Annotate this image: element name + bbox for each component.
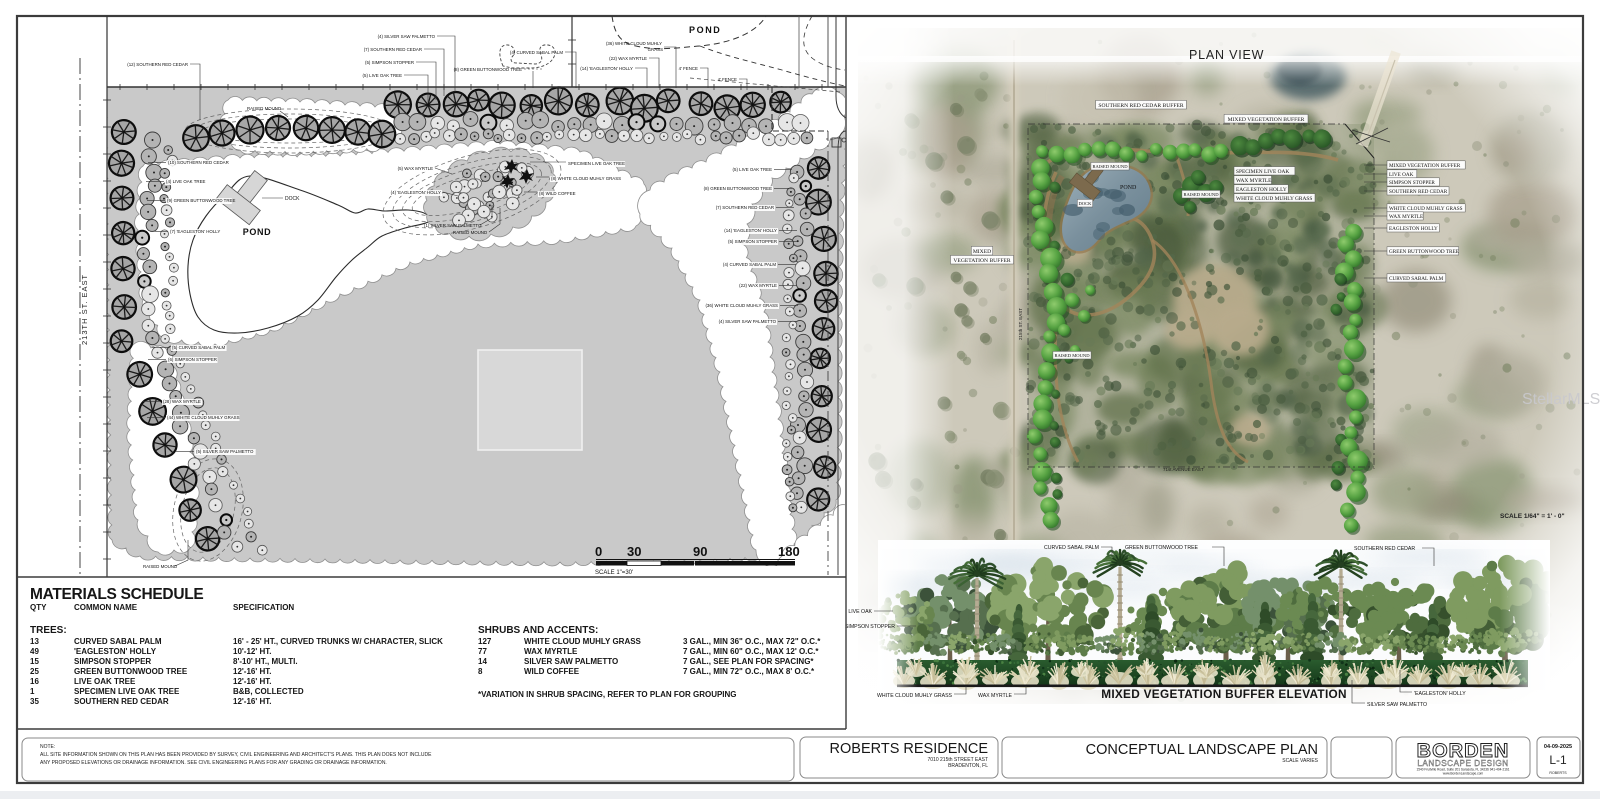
svg-text:WILD COFFEE: WILD COFFEE [524, 667, 580, 676]
svg-text:'EAGLESTON' HOLLY: 'EAGLESTON' HOLLY [74, 647, 157, 656]
svg-text:25: 25 [30, 667, 39, 676]
svg-text:*VARIATION IN SHRUB SPACING, R: *VARIATION IN SHRUB SPACING, REFER TO PL… [478, 690, 737, 699]
svg-text:MIXED VEGETATION BUFFER ELEVAT: MIXED VEGETATION BUFFER ELEVATION [1101, 687, 1347, 701]
svg-text:(22) WAX MYRTLE: (22) WAX MYRTLE [739, 283, 777, 288]
svg-text:ALL SITE INFORMATION SHOWN ON: ALL SITE INFORMATION SHOWN ON THIS PLAN … [40, 752, 432, 758]
svg-text:(5) LIVE OAK TREE: (5) LIVE OAK TREE [733, 167, 773, 172]
svg-text:GREEN BUTTONWOOD TREE: GREEN BUTTONWOOD TREE [74, 667, 188, 676]
svg-text:SPECIMEN LIVE OAK: SPECIMEN LIVE OAK [1236, 169, 1289, 175]
svg-text:(1) SILVER SAW PALMETTO: (1) SILVER SAW PALMETTO [424, 223, 482, 228]
svg-text:CURVED SABAL PALM: CURVED SABAL PALM [1389, 276, 1444, 282]
svg-text:LIVE OAK: LIVE OAK [1389, 172, 1414, 178]
svg-text:(7) SOUTHERN RED CEDAR: (7) SOUTHERN RED CEDAR [716, 205, 774, 210]
svg-text:(44) WHITE CLOUD MUHLY GRASS: (44) WHITE CLOUD MUHLY GRASS [167, 415, 240, 420]
svg-text:SCALE VARIES: SCALE VARIES [1282, 758, 1318, 764]
svg-text:14: 14 [478, 657, 487, 666]
svg-text:(5) WAX MYRTLE: (5) WAX MYRTLE [398, 166, 433, 171]
svg-text:(10) SOUTHERN RED CEDAR: (10) SOUTHERN RED CEDAR [168, 160, 229, 165]
svg-text:(4) 'EAGLESTON' HOLLY: (4) 'EAGLESTON' HOLLY [391, 190, 441, 195]
svg-text:(12) SOUTHERN RED CEDAR: (12) SOUTHERN RED CEDAR [127, 62, 188, 67]
svg-text:NOTE:: NOTE: [40, 744, 55, 750]
svg-text:12'-16' HT.: 12'-16' HT. [233, 697, 272, 706]
svg-text:8'-10' HT., MULTI.: 8'-10' HT., MULTI. [233, 657, 298, 666]
svg-text:SILVER SAW PALMETTO: SILVER SAW PALMETTO [1367, 702, 1427, 708]
svg-text:(4) SILVER SAW PALMETTO: (4) SILVER SAW PALMETTO [378, 34, 436, 39]
svg-text:4' FENCE: 4' FENCE [679, 66, 698, 71]
svg-text:RAISED MOUND: RAISED MOUND [453, 230, 487, 235]
svg-text:3 GAL., MIN 36" O.C., MAX 72": 3 GAL., MIN 36" O.C., MAX 72" O.C.* [683, 637, 821, 646]
svg-text:L-1: L-1 [1549, 753, 1567, 767]
svg-text:SHRUBS AND ACCENTS:: SHRUBS AND ACCENTS: [478, 625, 598, 636]
svg-text:SIMPSON STOPPER: SIMPSON STOPPER [74, 657, 151, 666]
svg-text:16' - 25' HT., CURVED TRUNKS W: 16' - 25' HT., CURVED TRUNKS W/ CHARACTE… [233, 637, 443, 646]
svg-text:DOCK: DOCK [285, 196, 300, 202]
svg-text:(8) GREEN BUTTONWOOD TREE: (8) GREEN BUTTONWOOD TREE [704, 186, 772, 191]
svg-text:WAX MYRTLE: WAX MYRTLE [1389, 214, 1423, 220]
svg-text:12'-16' HT.: 12'-16' HT. [233, 667, 272, 676]
svg-text:POND: POND [689, 25, 721, 35]
svg-text:EAGLESTON HOLLY: EAGLESTON HOLLY [1236, 187, 1287, 193]
svg-text:(4) CURVED SABAL PALM: (4) CURVED SABAL PALM [510, 50, 563, 55]
svg-text:SOUTHERN RED CEDAR BUFFER: SOUTHERN RED CEDAR BUFFER [1098, 103, 1184, 109]
svg-text:SPECIFICATION: SPECIFICATION [233, 603, 294, 612]
svg-text:GRASS: GRASS [648, 47, 663, 52]
svg-text:(22) WAX MYRTLE: (22) WAX MYRTLE [609, 56, 647, 61]
svg-text:(6) SIMPSON STOPPER: (6) SIMPSON STOPPER [168, 357, 217, 362]
svg-text:WHITE CLOUD MUHLY GRASS: WHITE CLOUD MUHLY GRASS [1389, 206, 1463, 212]
svg-text:(8) GREEN BUTTONWOOD TREE: (8) GREEN BUTTONWOOD TREE [454, 67, 522, 72]
svg-text:04-09-2025: 04-09-2025 [1544, 744, 1572, 750]
svg-text:90: 90 [693, 544, 707, 559]
svg-text:GREEN BUTTONWOOD TREE: GREEN BUTTONWOOD TREE [1125, 545, 1199, 551]
svg-text:77: 77 [478, 647, 487, 656]
svg-text:RAISED MOUND: RAISED MOUND [143, 564, 177, 569]
svg-text:7 GAL., SEE PLAN FOR SPACING*: 7 GAL., SEE PLAN FOR SPACING* [683, 657, 814, 666]
svg-text:4' FENCE: 4' FENCE [718, 77, 737, 82]
svg-text:213TH ST. EAST: 213TH ST. EAST [80, 274, 89, 345]
svg-text:(9) GREEN BUTTONWOOD TREE: (9) GREEN BUTTONWOOD TREE [167, 198, 235, 203]
svg-text:MIXED VEGETATION BUFFER: MIXED VEGETATION BUFFER [1228, 117, 1305, 123]
svg-text:13: 13 [30, 637, 39, 646]
svg-text:www.BordenLandscape.com: www.BordenLandscape.com [1443, 772, 1484, 776]
svg-text:(5) SIMPSON STOPPER: (5) SIMPSON STOPPER [728, 239, 777, 244]
svg-text:RAISED MOUND: RAISED MOUND [1183, 192, 1219, 197]
svg-text:COMMON NAME: COMMON NAME [74, 603, 138, 612]
svg-text:SPECIMEN LIVE OAK TREE: SPECIMEN LIVE OAK TREE [568, 161, 625, 166]
svg-text:WAX MYRTLE: WAX MYRTLE [1236, 178, 1272, 184]
svg-text:127: 127 [478, 637, 492, 646]
svg-text:1: 1 [30, 687, 35, 696]
svg-text:TREES:: TREES: [30, 625, 67, 636]
svg-text:ANY PROPOSED ELEVATIONS OR DRA: ANY PROPOSED ELEVATIONS OR DRAINAGE INFO… [40, 760, 387, 766]
svg-text:MIXED: MIXED [973, 249, 991, 255]
svg-text:(8) WHITE CLOUD MUHLY GRASS: (8) WHITE CLOUD MUHLY GRASS [551, 176, 621, 181]
svg-text:(8) WILD COFFEE: (8) WILD COFFEE [539, 191, 576, 196]
svg-text:30: 30 [627, 544, 641, 559]
svg-text:WHITE CLOUD MUHLY GRASS: WHITE CLOUD MUHLY GRASS [1236, 196, 1312, 202]
svg-text:(4) LIVE OAK TREE: (4) LIVE OAK TREE [166, 179, 206, 184]
svg-text:SOUTHERN RED CEDAR: SOUTHERN RED CEDAR [74, 697, 169, 706]
svg-text:POND: POND [1120, 185, 1137, 191]
svg-text:VEGETATION BUFFER: VEGETATION BUFFER [953, 258, 1010, 264]
svg-text:215th ST. EAST: 215th ST. EAST [1018, 308, 1023, 340]
svg-text:SPECIMEN LIVE OAK TREE: SPECIMEN LIVE OAK TREE [74, 687, 180, 696]
svg-text:LIVE OAK TREE: LIVE OAK TREE [74, 677, 136, 686]
svg-text:(7) 'EAGLESTON' HOLLY: (7) 'EAGLESTON' HOLLY [170, 229, 220, 234]
svg-text:SOUTHERN RED CEDAR: SOUTHERN RED CEDAR [1354, 546, 1415, 552]
svg-text:MIXED VEGETATION BUFFER: MIXED VEGETATION BUFFER [1389, 163, 1461, 169]
svg-text:15: 15 [30, 657, 39, 666]
svg-text:7 GAL., MIN 60" O.C., MAX 12': 7 GAL., MIN 60" O.C., MAX 12' O.C.* [683, 647, 819, 656]
svg-text:BRADENTON, FL: BRADENTON, FL [948, 763, 988, 769]
svg-text:(36) WHITE CLOUD MUHLY GRASS: (36) WHITE CLOUD MUHLY GRASS [705, 303, 778, 308]
svg-text:SOUTHERN RED CEDAR: SOUTHERN RED CEDAR [1389, 189, 1448, 195]
svg-text:35: 35 [30, 697, 39, 706]
svg-text:CONCEPTUAL LANDSCAPE PLAN: CONCEPTUAL LANDSCAPE PLAN [1086, 742, 1318, 758]
svg-text:GREEN BUTTONWOOD TREE: GREEN BUTTONWOOD TREE [1389, 249, 1459, 255]
svg-text:(5) SILVER SAW PALMETTO: (5) SILVER SAW PALMETTO [196, 449, 254, 454]
svg-text:ROBERTS: ROBERTS [1549, 771, 1567, 775]
svg-text:WHITE CLOUD MUHLY GRASS: WHITE CLOUD MUHLY GRASS [524, 637, 642, 646]
svg-text:WAX MYRTLE: WAX MYRTLE [524, 647, 578, 656]
svg-text:WHITE CLOUD MUHLY GRASS: WHITE CLOUD MUHLY GRASS [877, 693, 953, 699]
svg-text:RAISED MOUND: RAISED MOUND [247, 106, 281, 111]
svg-text:(5) CURVED SABAL PALM: (5) CURVED SABAL PALM [172, 345, 225, 350]
svg-text:(5) LIVE OAK TREE: (5) LIVE OAK TREE [363, 73, 403, 78]
svg-text:RAISED MOUND: RAISED MOUND [1092, 164, 1128, 169]
svg-text:SCALE 1/64" = 1' - 0": SCALE 1/64" = 1' - 0" [1500, 513, 1565, 520]
svg-text:(5) SIMPSON STOPPER: (5) SIMPSON STOPPER [365, 60, 414, 65]
svg-text:8: 8 [478, 667, 483, 676]
svg-text:PLAN VIEW: PLAN VIEW [1189, 48, 1264, 62]
svg-text:EAGLESTON HOLLY: EAGLESTON HOLLY [1389, 226, 1438, 232]
svg-text:SCALE 1"=30': SCALE 1"=30' [595, 570, 633, 576]
svg-text:(4) SILVER SAW PALMETTO: (4) SILVER SAW PALMETTO [719, 319, 777, 324]
svg-text:180: 180 [778, 544, 800, 559]
svg-text:71st AVENUE EAST: 71st AVENUE EAST [1163, 467, 1204, 472]
svg-text:QTY: QTY [30, 603, 47, 612]
svg-text:RAISED MOUND: RAISED MOUND [1054, 353, 1090, 358]
svg-text:LIVE OAK: LIVE OAK [848, 609, 872, 615]
svg-text:SILVER SAW PALMETTO: SILVER SAW PALMETTO [524, 657, 618, 666]
svg-text:SIMPSON STOPPER: SIMPSON STOPPER [845, 624, 895, 630]
svg-text:16: 16 [30, 677, 39, 686]
svg-text:B&B, COLLECTED: B&B, COLLECTED [233, 687, 304, 696]
svg-text:CURVED SABAL PALM: CURVED SABAL PALM [1044, 545, 1099, 551]
svg-text:(7) SOUTHERN RED CEDAR: (7) SOUTHERN RED CEDAR [364, 47, 422, 52]
svg-text:(28) WAX MYRTLE: (28) WAX MYRTLE [163, 399, 201, 404]
svg-text:ROBERTS RESIDENCE: ROBERTS RESIDENCE [830, 741, 989, 757]
svg-text:DOCK: DOCK [1078, 201, 1092, 206]
svg-text:49: 49 [30, 647, 39, 656]
svg-text:0: 0 [595, 544, 602, 559]
svg-text:StellarMLS: StellarMLS [1522, 391, 1600, 408]
svg-text:'EAGLESTON' HOLLY: 'EAGLESTON' HOLLY [1414, 691, 1466, 697]
svg-text:(36) WHITE CLOUD MUHLY: (36) WHITE CLOUD MUHLY [606, 41, 662, 46]
svg-text:POND: POND [243, 227, 271, 237]
svg-text:MATERIALS SCHEDULE: MATERIALS SCHEDULE [30, 586, 203, 603]
svg-text:CURVED SABAL PALM: CURVED SABAL PALM [74, 637, 162, 646]
svg-text:(4) CURVED SABAL PALM: (4) CURVED SABAL PALM [723, 262, 776, 267]
svg-text:10'-12' HT.: 10'-12' HT. [233, 647, 272, 656]
svg-text:(14) 'EAGLESTON' HOLLY: (14) 'EAGLESTON' HOLLY [724, 228, 777, 233]
svg-text:WAX MYRTLE: WAX MYRTLE [978, 693, 1013, 699]
svg-text:SIMPSON STOPPER: SIMPSON STOPPER [1389, 180, 1435, 186]
svg-text:(14) 'EAGLESTON' HOLLY: (14) 'EAGLESTON' HOLLY [580, 66, 633, 71]
svg-text:7 GAL., MIN 72" O.C., MAX 8' O: 7 GAL., MIN 72" O.C., MAX 8' O.C.* [683, 667, 815, 676]
svg-text:12'-16' HT.: 12'-16' HT. [233, 677, 272, 686]
